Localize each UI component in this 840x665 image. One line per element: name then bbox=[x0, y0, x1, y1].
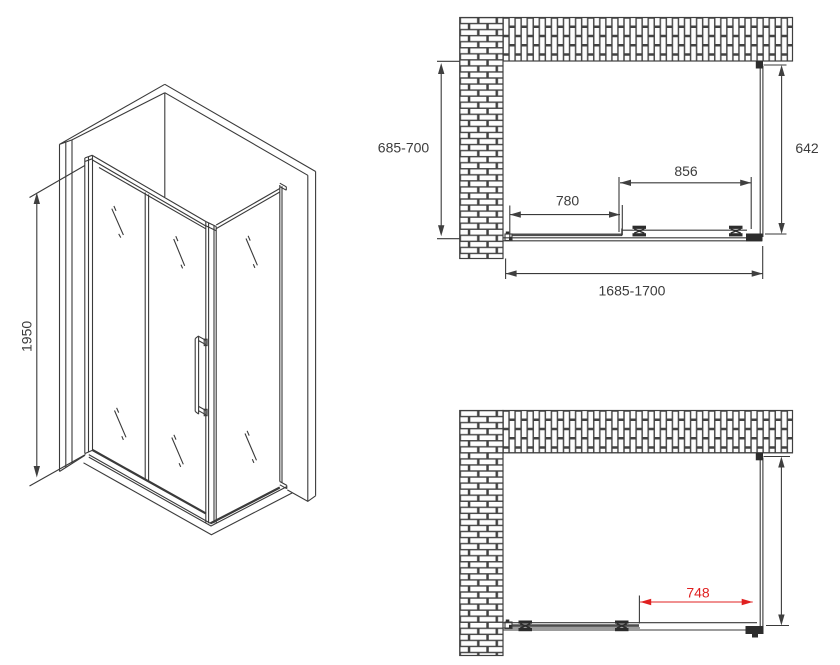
svg-text:780: 780 bbox=[556, 193, 580, 209]
svg-text:1685-1700: 1685-1700 bbox=[599, 283, 666, 299]
svg-text:856: 856 bbox=[674, 163, 698, 179]
svg-text:685-700: 685-700 bbox=[378, 140, 430, 156]
svg-text:748: 748 bbox=[686, 585, 710, 601]
svg-text:642: 642 bbox=[795, 140, 819, 156]
svg-text:1950: 1950 bbox=[19, 321, 35, 352]
